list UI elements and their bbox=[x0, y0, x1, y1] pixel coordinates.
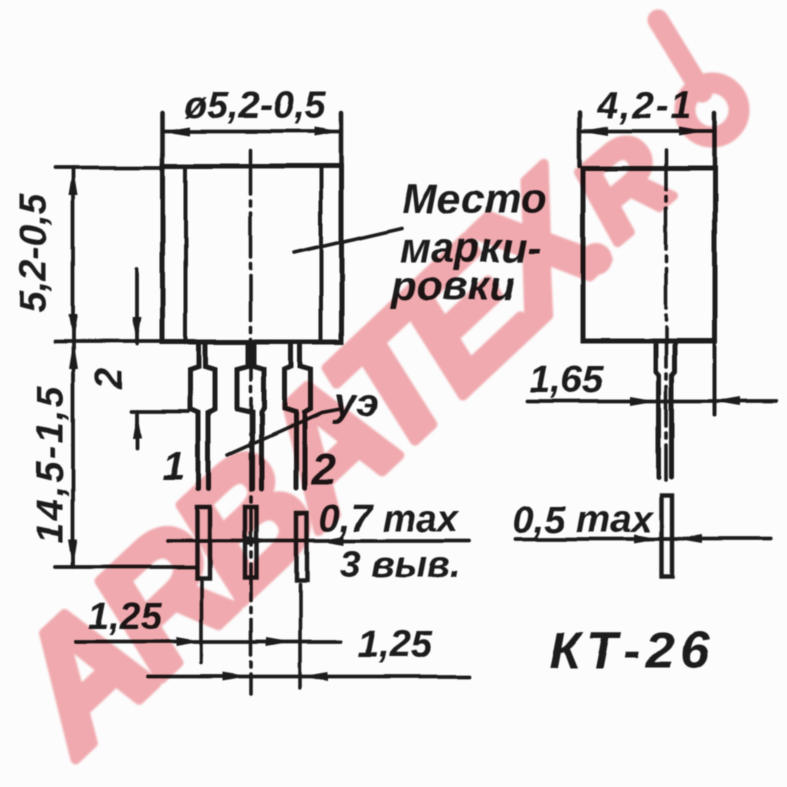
svg-text:1,25: 1,25 bbox=[358, 624, 433, 666]
svg-text:КТ-26: КТ-26 bbox=[549, 622, 714, 680]
svg-text:0,5 max: 0,5 max bbox=[513, 499, 654, 541]
svg-text:5,2-0,5: 5,2-0,5 bbox=[13, 193, 55, 312]
svg-text:3 выв.: 3 выв. bbox=[340, 544, 461, 586]
svg-text:ø5,2-0,5: ø5,2-0,5 bbox=[184, 85, 326, 127]
svg-text:14,5-1,5: 14,5-1,5 bbox=[30, 384, 72, 543]
svg-text:2: 2 bbox=[88, 368, 130, 390]
